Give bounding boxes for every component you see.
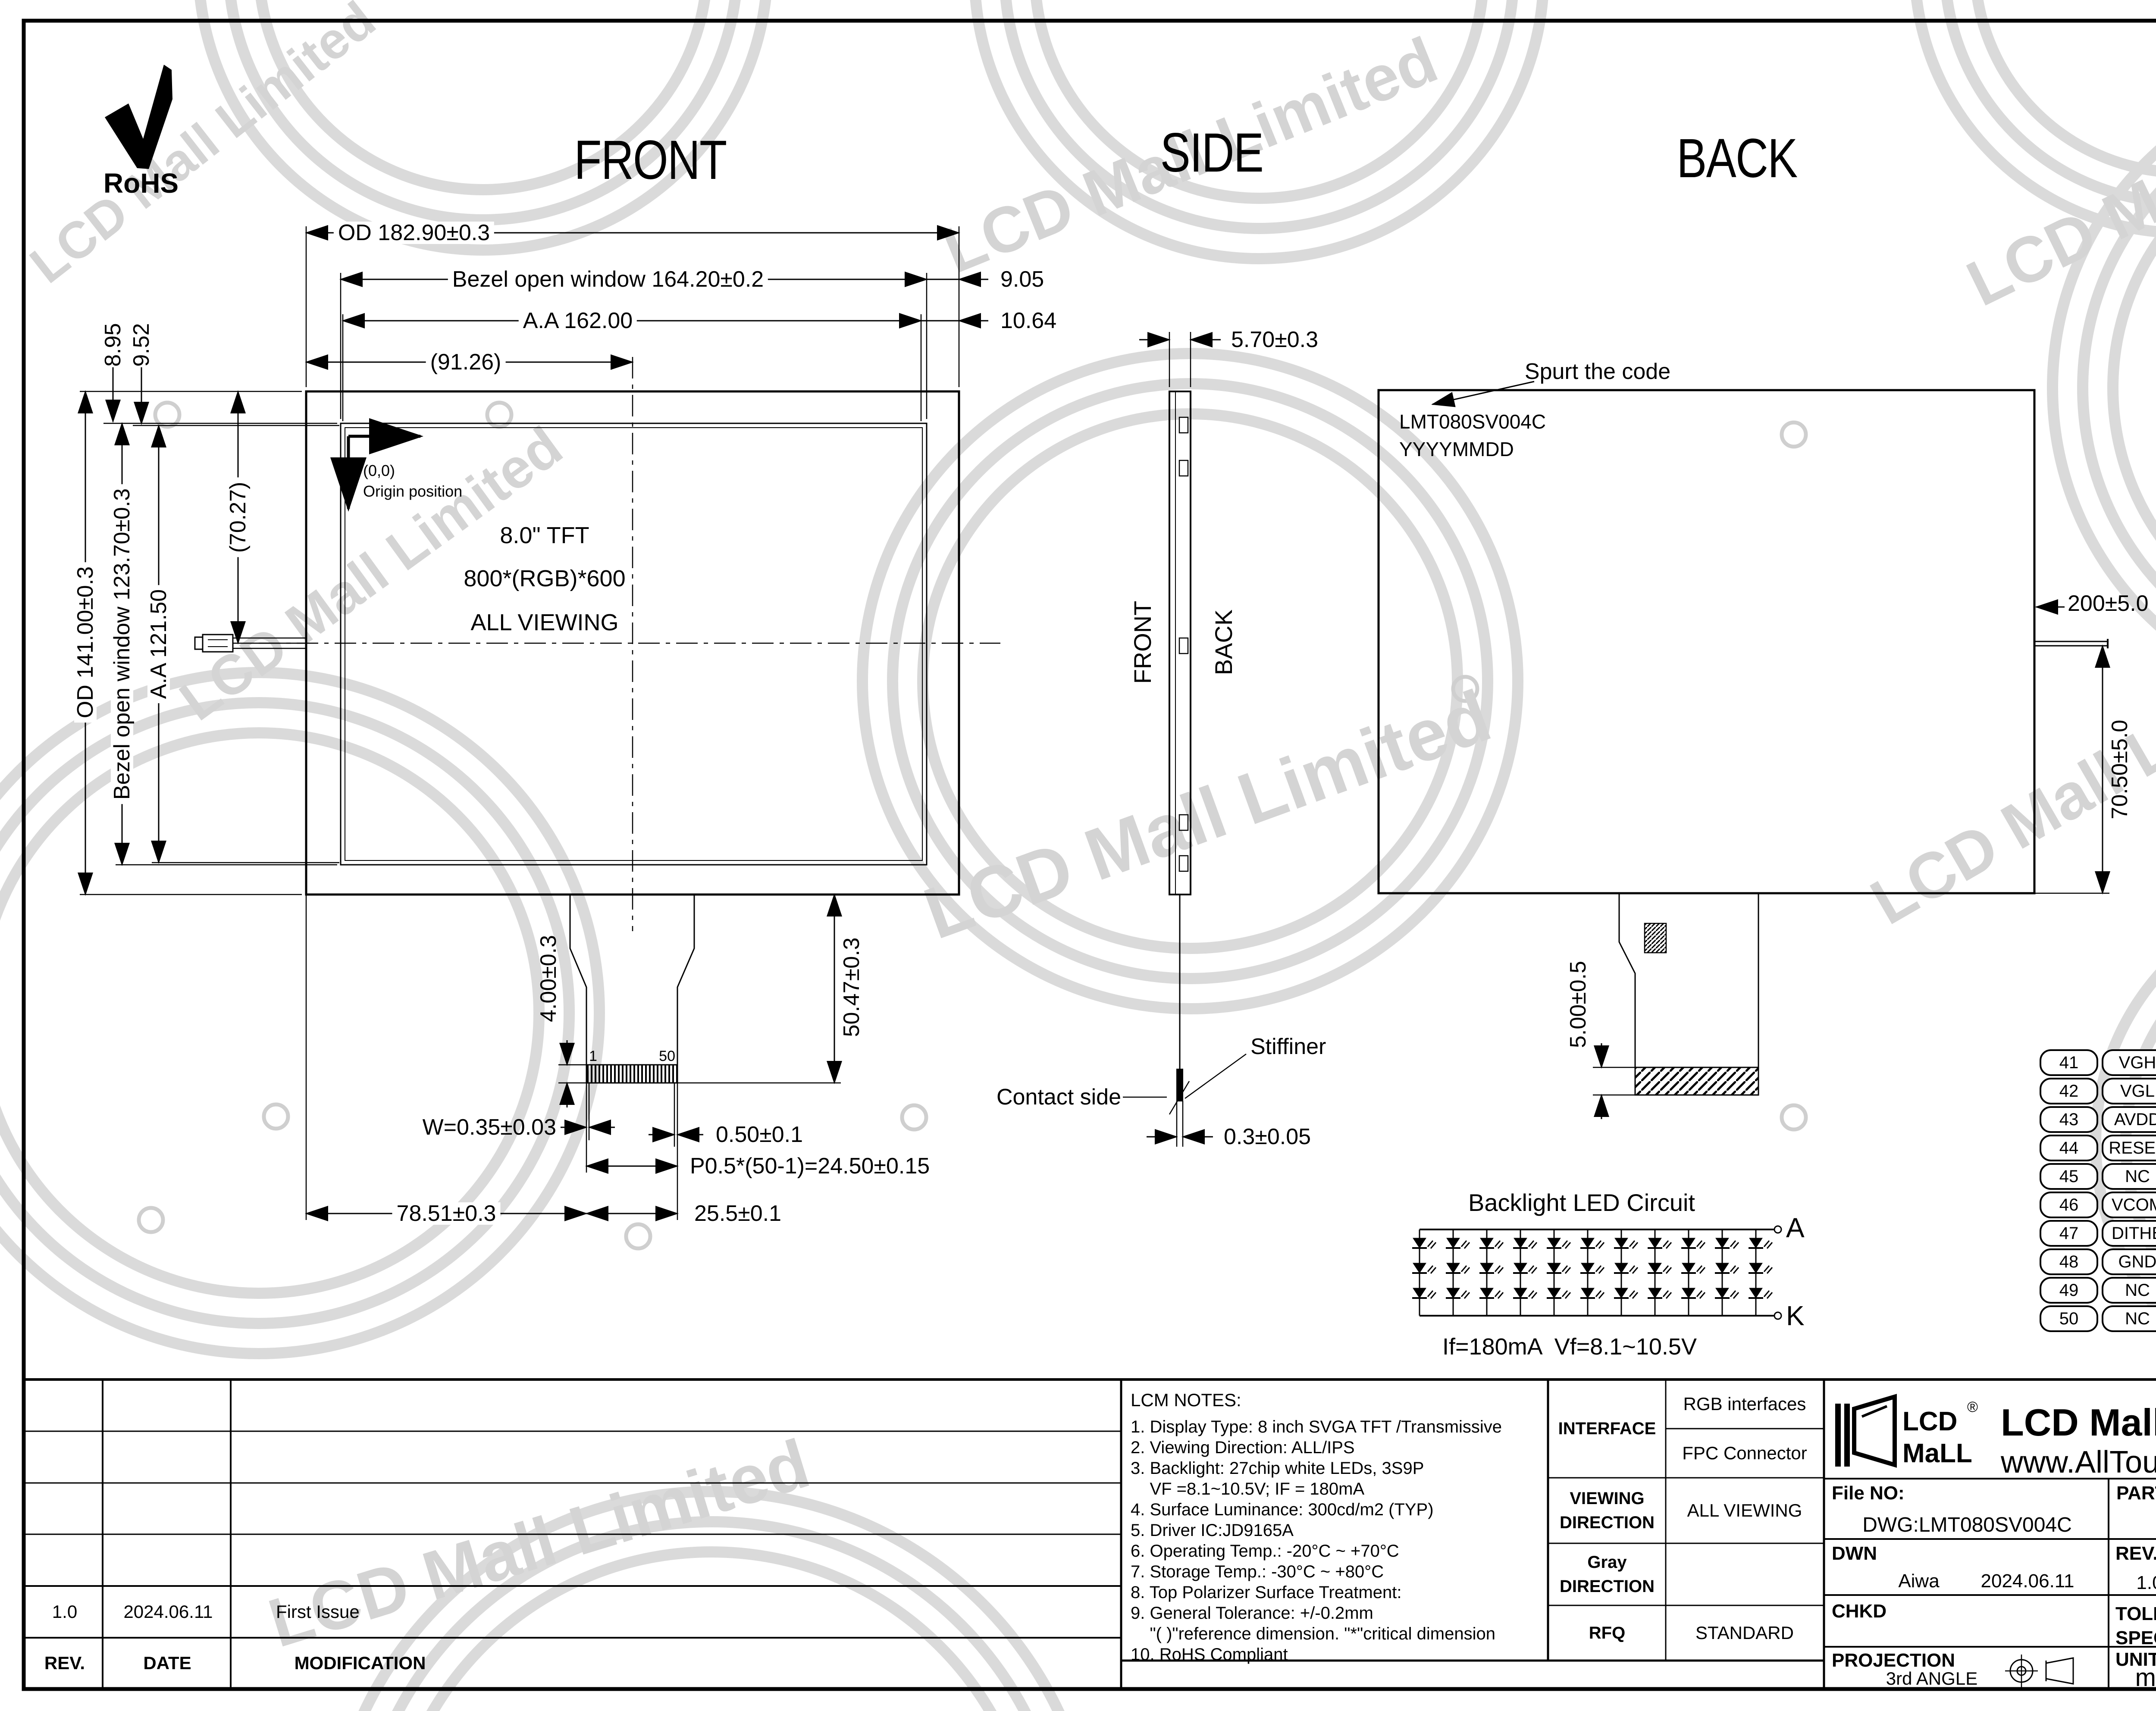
led-diode-icon: [1548, 1238, 1561, 1248]
led-diode-icon: [1615, 1238, 1628, 1248]
lcm-note-line: 8. Top Polarizer Surface Treatment:: [1131, 1582, 1539, 1603]
dim-offset-1064: 10.64: [1000, 310, 1056, 332]
lcm-note-line: 4. Surface Luminance: 300cd/m2 (TYP): [1131, 1499, 1539, 1520]
lcm-note-line: 2. Viewing Direction: ALL/IPS: [1131, 1437, 1539, 1458]
led-diode-icon: [1682, 1263, 1695, 1273]
drawing-linework: [0, 0, 2156, 1711]
lcm-note-line: 10. RoHS Compliant: [1131, 1644, 1539, 1665]
backlight-cathode-label: K: [1786, 1302, 1805, 1329]
led-diode-icon: [1480, 1288, 1493, 1298]
logo-text-mall: MaLL: [1902, 1440, 1972, 1467]
dim-od-width: OD 182.90±0.3: [334, 222, 494, 244]
dim-fpc-length: 50.47±0.3: [840, 938, 863, 1037]
led-diode-icon: [1749, 1263, 1762, 1273]
dwn-label: DWN: [1832, 1544, 1877, 1563]
led-diode-icon: [1581, 1288, 1594, 1298]
rev-label: REV.: [2115, 1544, 2156, 1563]
fpc-pin50-label: 50: [659, 1049, 675, 1064]
dwn-name: Aiwa: [1898, 1572, 1939, 1591]
led-diode-icon: [1648, 1288, 1661, 1298]
backlight-spec: If=180mA Vf=8.1~10.5V: [1442, 1335, 1697, 1358]
pin-symbol-cell: GND: [2102, 1248, 2156, 1275]
rev-header-modification: MODIFICATION: [295, 1654, 426, 1672]
pin-row: 46VCOM: [2040, 1192, 2156, 1218]
projection-value: 3rd ANGLE: [1886, 1670, 1977, 1688]
lcm-note-line: 7. Storage Temp.: -30°C ~ +80°C: [1131, 1561, 1539, 1582]
pin-symbol-cell: RESET: [2102, 1135, 2156, 1161]
rev-row-rev: 1.0: [52, 1603, 77, 1621]
pin-symbol-cell: NC: [2102, 1277, 2156, 1304]
lcm-note-line: 1. Display Type: 8 inch SVGA TFT /Transm…: [1131, 1417, 1539, 1437]
dim-od-height: OD 141.00±0.3: [74, 562, 97, 723]
dim-fpc-thickness: 0.3±0.05: [1224, 1126, 1311, 1148]
pin-number-cell: 44: [2040, 1135, 2098, 1161]
spec-viewing-label1: VIEWING: [1570, 1490, 1644, 1507]
pin-number-cell: 48: [2040, 1248, 2098, 1275]
back-code-line2: YYYYMMDD: [1399, 439, 1514, 459]
part-no-label: PART NO.: [2116, 1484, 2156, 1503]
tolerance-label1: TOLERANCE UNLESS: [2115, 1605, 2156, 1623]
dim-offset-895: 8.95: [102, 323, 124, 366]
led-diode-icon: [1413, 1238, 1426, 1248]
origin-coord: (0,0): [363, 463, 395, 479]
led-diode-icon: [1548, 1288, 1561, 1298]
led-diode-icon: [1581, 1238, 1594, 1248]
lcdmall-logo-icon: [1835, 1397, 1895, 1467]
company-website: www.AllTouchDisplay.com: [2001, 1447, 2156, 1478]
contact-side-label: Contact side: [997, 1086, 1121, 1108]
pin-symbol-cell: VGL: [2102, 1078, 2156, 1104]
pin-symbol-cell: NC: [2102, 1305, 2156, 1332]
pin-row: 50NC: [2040, 1305, 2156, 1332]
pin-number-cell: 45: [2040, 1163, 2098, 1190]
engineering-drawing-sheet: LCD Mall Limited LCD Mall Limited LCD Ma…: [0, 0, 2156, 1711]
pin-row: 49NC: [2040, 1277, 2156, 1304]
side-back-label: BACK: [1212, 610, 1236, 676]
stiffener-label: Stiffiner: [1250, 1035, 1326, 1058]
lcm-note-line: 9. General Tolerance: +/-0.2mm: [1131, 1603, 1539, 1623]
led-diode-icon: [1615, 1263, 1628, 1273]
dim-bezel-width: Bezel open window 164.20±0.2: [448, 268, 768, 291]
dim-aa-width: A.A 162.00: [519, 310, 637, 332]
pin-number-cell: 41: [2040, 1049, 2098, 1076]
back-view-title: BACK: [1677, 131, 1797, 186]
fpc-pin1-label: 1: [589, 1049, 597, 1064]
led-diode-icon: [1413, 1288, 1426, 1298]
led-diode-icon: [1716, 1263, 1729, 1273]
led-diode-icon: [1682, 1238, 1695, 1248]
spec-viewing-label2: DIRECTION: [1560, 1514, 1655, 1531]
pin-symbol-cell: DITHB: [2102, 1220, 2156, 1247]
led-diode-icon: [1615, 1288, 1628, 1298]
led-diode-icon: [1548, 1263, 1561, 1273]
pin-symbol-cell: NC: [2102, 1163, 2156, 1190]
dim-offset-905: 9.05: [1000, 268, 1044, 291]
pin-row: 43AVDD: [2040, 1106, 2156, 1133]
dim-fpc-comb-height: 4.00±0.3: [537, 935, 560, 1022]
led-diode-icon: [1716, 1238, 1729, 1248]
projection-label: PROJECTION: [1832, 1651, 1955, 1670]
dim-fpc-width: 25.5±0.1: [694, 1202, 781, 1225]
pin-row: 44RESET: [2040, 1135, 2156, 1161]
dim-bezel-height: Bezel open window 123.70±0.3: [111, 484, 133, 804]
dim-finger-pitch: P0.5*(50-1)=24.50±0.15: [690, 1155, 930, 1177]
spec-rfq-label: RFQ: [1589, 1624, 1625, 1642]
unit-value: mm: [2135, 1665, 2156, 1690]
dim-finger-width: W=0.35±0.03: [423, 1116, 556, 1139]
backlight-led-circuit: [1412, 1226, 1781, 1319]
lcm-note-line: 6. Operating Temp.: -20°C ~ +70°C: [1131, 1541, 1539, 1561]
dim-offset-952: 9.52: [130, 323, 153, 366]
spec-interface-value1: RGB interfaces: [1683, 1395, 1806, 1413]
rev-value: 1.0: [2136, 1573, 2156, 1592]
panel-viewing-text: ALL VIEWING: [470, 611, 618, 634]
back-code-line1: LMT080SV004C: [1399, 412, 1546, 432]
dim-thickness: 5.70±0.3: [1231, 328, 1318, 351]
rev-row-date: 2024.06.11: [123, 1603, 213, 1621]
pin-number-cell: 46: [2040, 1192, 2098, 1218]
origin-label: Origin position: [363, 484, 462, 499]
led-diode-icon: [1749, 1288, 1762, 1298]
pin-number-cell: 49: [2040, 1277, 2098, 1304]
lcm-note-line: 3. Backlight: 27chip white LEDs, 3S9P: [1131, 1458, 1539, 1479]
dwn-date: 2024.06.11: [1981, 1572, 2075, 1591]
front-view-title: FRONT: [574, 133, 726, 188]
dim-wire-length: 200±5.0: [2068, 592, 2149, 615]
dim-finger-gap: 0.50±0.1: [716, 1123, 803, 1146]
rev-row-modification: First Issue: [276, 1603, 360, 1621]
lcm-note-line: 5. Driver IC:JD9165A: [1131, 1520, 1539, 1541]
rev-header-date: DATE: [143, 1654, 191, 1672]
pin-row: 45NC: [2040, 1163, 2156, 1190]
led-diode-icon: [1581, 1263, 1594, 1273]
pin-number-cell: 50: [2040, 1305, 2098, 1332]
backlight-title: Backlight LED Circuit: [1468, 1191, 1695, 1215]
panel-resolution-text: 800*(RGB)*600: [464, 567, 625, 590]
chkd-label: CHKD: [1832, 1602, 1887, 1621]
lcm-pin-table-aux: 41VGH42VGL43AVDD44RESET45NC46VCOM47DITHB…: [2040, 1049, 2156, 1334]
pin-number-cell: 42: [2040, 1078, 2098, 1104]
lcm-note-line: VF =8.1~10.5V; IF = 180mA: [1131, 1479, 1539, 1499]
pin-symbol-cell: VGH: [2102, 1049, 2156, 1076]
spec-gray-label1: Gray: [1587, 1554, 1626, 1571]
led-diode-icon: [1682, 1288, 1695, 1298]
dim-aa-height: A.A 121.50: [147, 585, 170, 703]
spec-rfq-value: STANDARD: [1695, 1624, 1794, 1642]
lcm-notes: LCM NOTES: 1. Display Type: 8 inch SVGA …: [1131, 1390, 1539, 1665]
rohs-label: RoHS: [103, 169, 179, 197]
side-front-label: FRONT: [1131, 601, 1155, 684]
file-no-label: File NO:: [1832, 1484, 1905, 1503]
logo-registered-mark: ®: [1967, 1400, 1978, 1414]
rohs-check-icon: [105, 65, 172, 169]
led-diode-icon: [1514, 1288, 1527, 1298]
tolerance-label2: SPECIFIED: [2115, 1629, 2156, 1648]
panel-size-text: 8.0" TFT: [500, 524, 589, 547]
spec-interface-value2: FPC Connector: [1682, 1444, 1807, 1462]
dim-wire-position: 70.50±5.0: [2109, 720, 2131, 820]
pin-number-cell: 47: [2040, 1220, 2098, 1247]
dim-fpc-offset: 78.51±0.3: [392, 1202, 501, 1225]
pin-row: 41VGH: [2040, 1049, 2156, 1076]
led-diode-icon: [1413, 1263, 1426, 1273]
front-view: [80, 226, 1000, 1220]
dim-back-tail: 5.00±0.5: [1567, 961, 1589, 1048]
led-diode-icon: [1480, 1263, 1493, 1273]
pin-number-cell: 43: [2040, 1106, 2098, 1133]
pin-symbol-cell: VCOM: [2102, 1192, 2156, 1218]
led-diode-icon: [1648, 1238, 1661, 1248]
rev-header-rev: REV.: [44, 1654, 85, 1672]
side-view-title: SIDE: [1160, 125, 1263, 181]
led-diode-icon: [1749, 1238, 1762, 1248]
pin-row: 48GND: [2040, 1248, 2156, 1275]
logo-text-lcd: LCD: [1902, 1408, 1957, 1435]
back-view: [1379, 382, 2109, 1119]
led-diode-icon: [1514, 1238, 1527, 1248]
dim-ref-height: (70.27): [227, 478, 249, 557]
led-diode-icon: [1447, 1263, 1460, 1273]
lcm-note-line: "( )"reference dimension. "*"critical di…: [1131, 1623, 1539, 1644]
backlight-anode-label: A: [1786, 1214, 1805, 1242]
company-name: LCD Mall Limited: [2001, 1404, 2156, 1442]
led-diode-icon: [1447, 1288, 1460, 1298]
led-diode-icon: [1716, 1288, 1729, 1298]
spec-interface-label: INTERFACE: [1558, 1420, 1656, 1437]
pin-row: 42VGL: [2040, 1078, 2156, 1104]
dim-ref-width: (91.26): [426, 351, 506, 373]
led-diode-icon: [1480, 1238, 1493, 1248]
file-no-value: DWG:LMT080SV004C: [1862, 1515, 2072, 1536]
spec-gray-label2: DIRECTION: [1560, 1578, 1655, 1595]
spec-viewing-value: ALL VIEWING: [1687, 1501, 1802, 1520]
pin-row: 47DITHB: [2040, 1220, 2156, 1247]
led-diode-icon: [1514, 1263, 1527, 1273]
lcm-notes-title: LCM NOTES:: [1131, 1390, 1539, 1411]
side-view: [1123, 332, 1246, 1147]
spurt-code-label: Spurt the code: [1525, 360, 1670, 383]
led-diode-icon: [1447, 1238, 1460, 1248]
pin-symbol-cell: AVDD: [2102, 1106, 2156, 1133]
led-diode-icon: [1648, 1263, 1661, 1273]
